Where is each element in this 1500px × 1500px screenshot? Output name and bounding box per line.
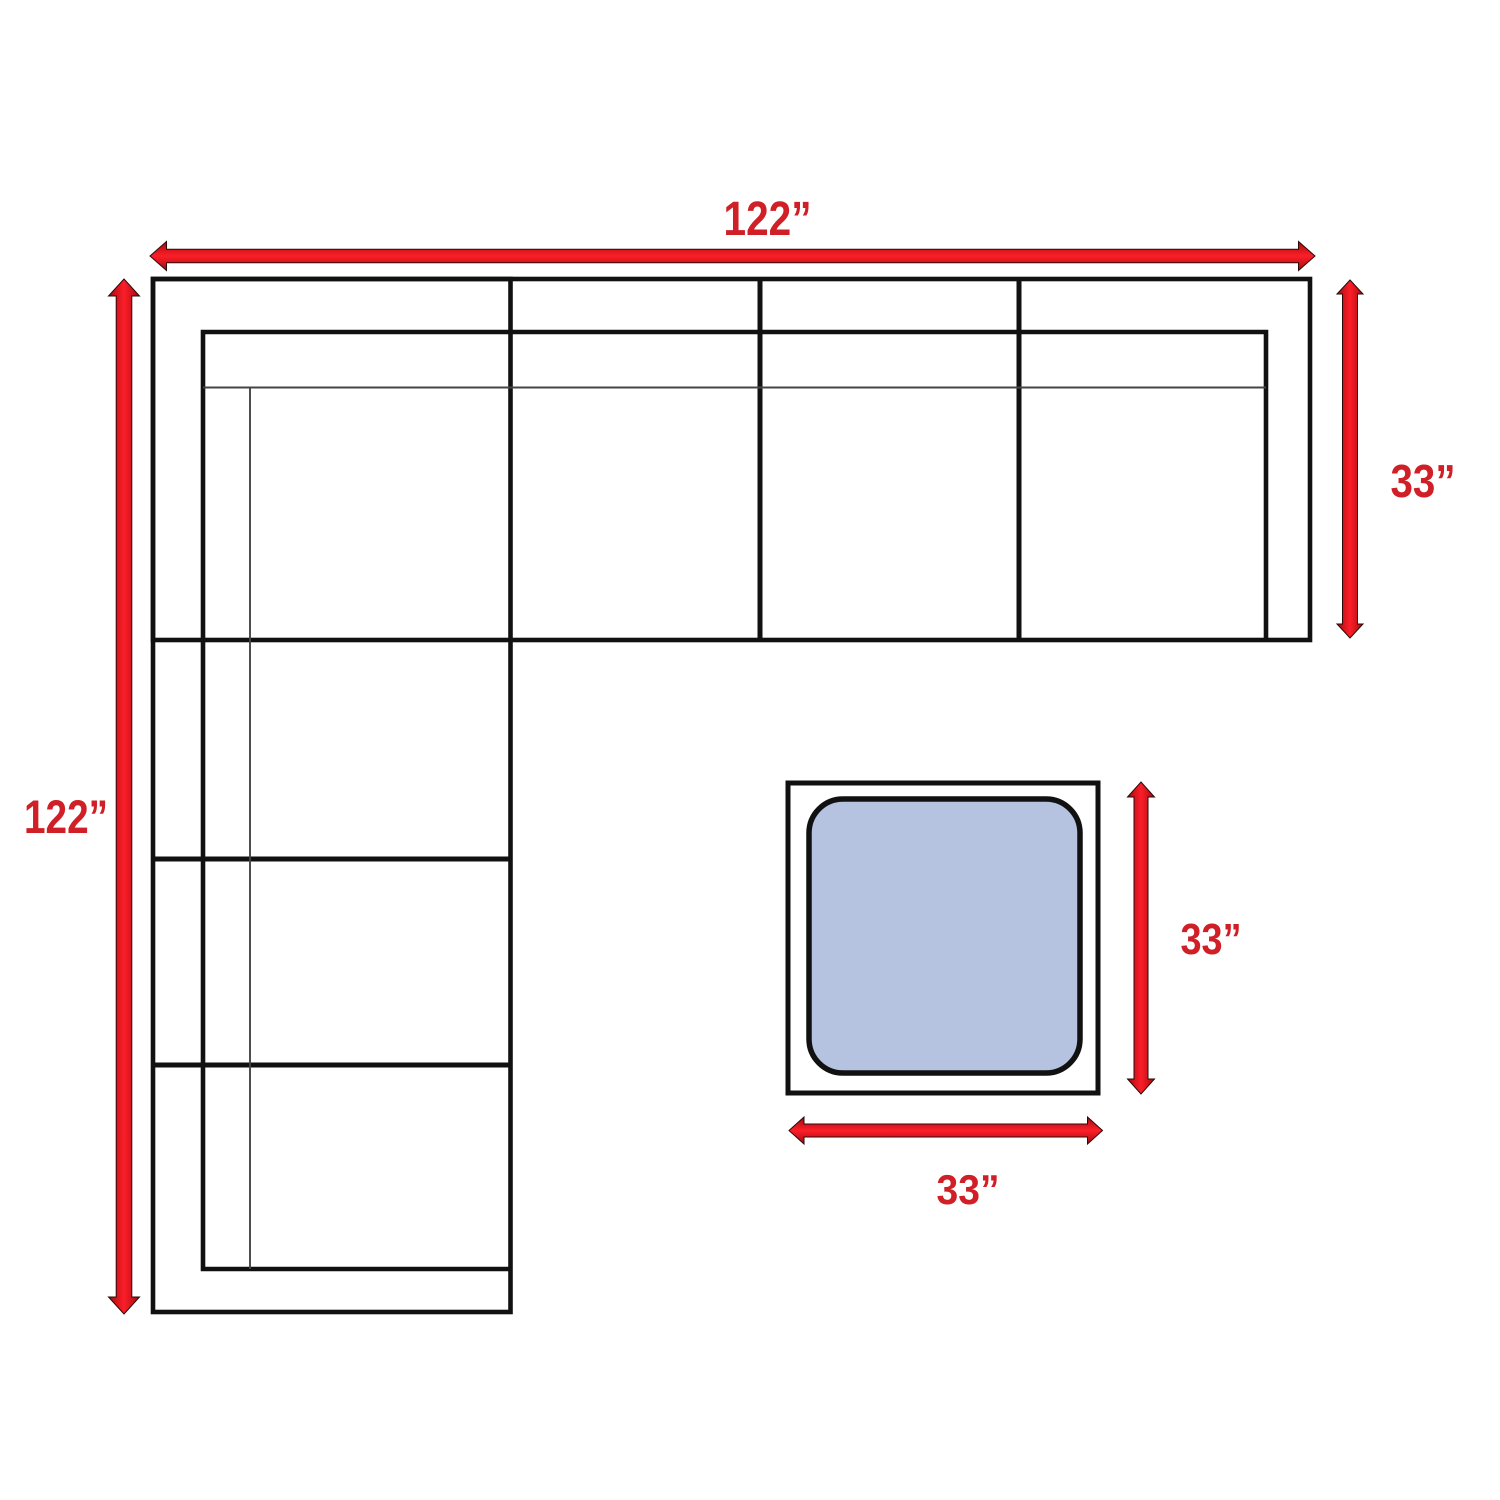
svg-text:33”: 33”: [937, 1166, 1000, 1213]
svg-text:33”: 33”: [1391, 455, 1456, 507]
svg-text:122”: 122”: [724, 193, 812, 246]
svg-text:122”: 122”: [24, 790, 108, 843]
svg-text:33”: 33”: [1181, 915, 1242, 964]
